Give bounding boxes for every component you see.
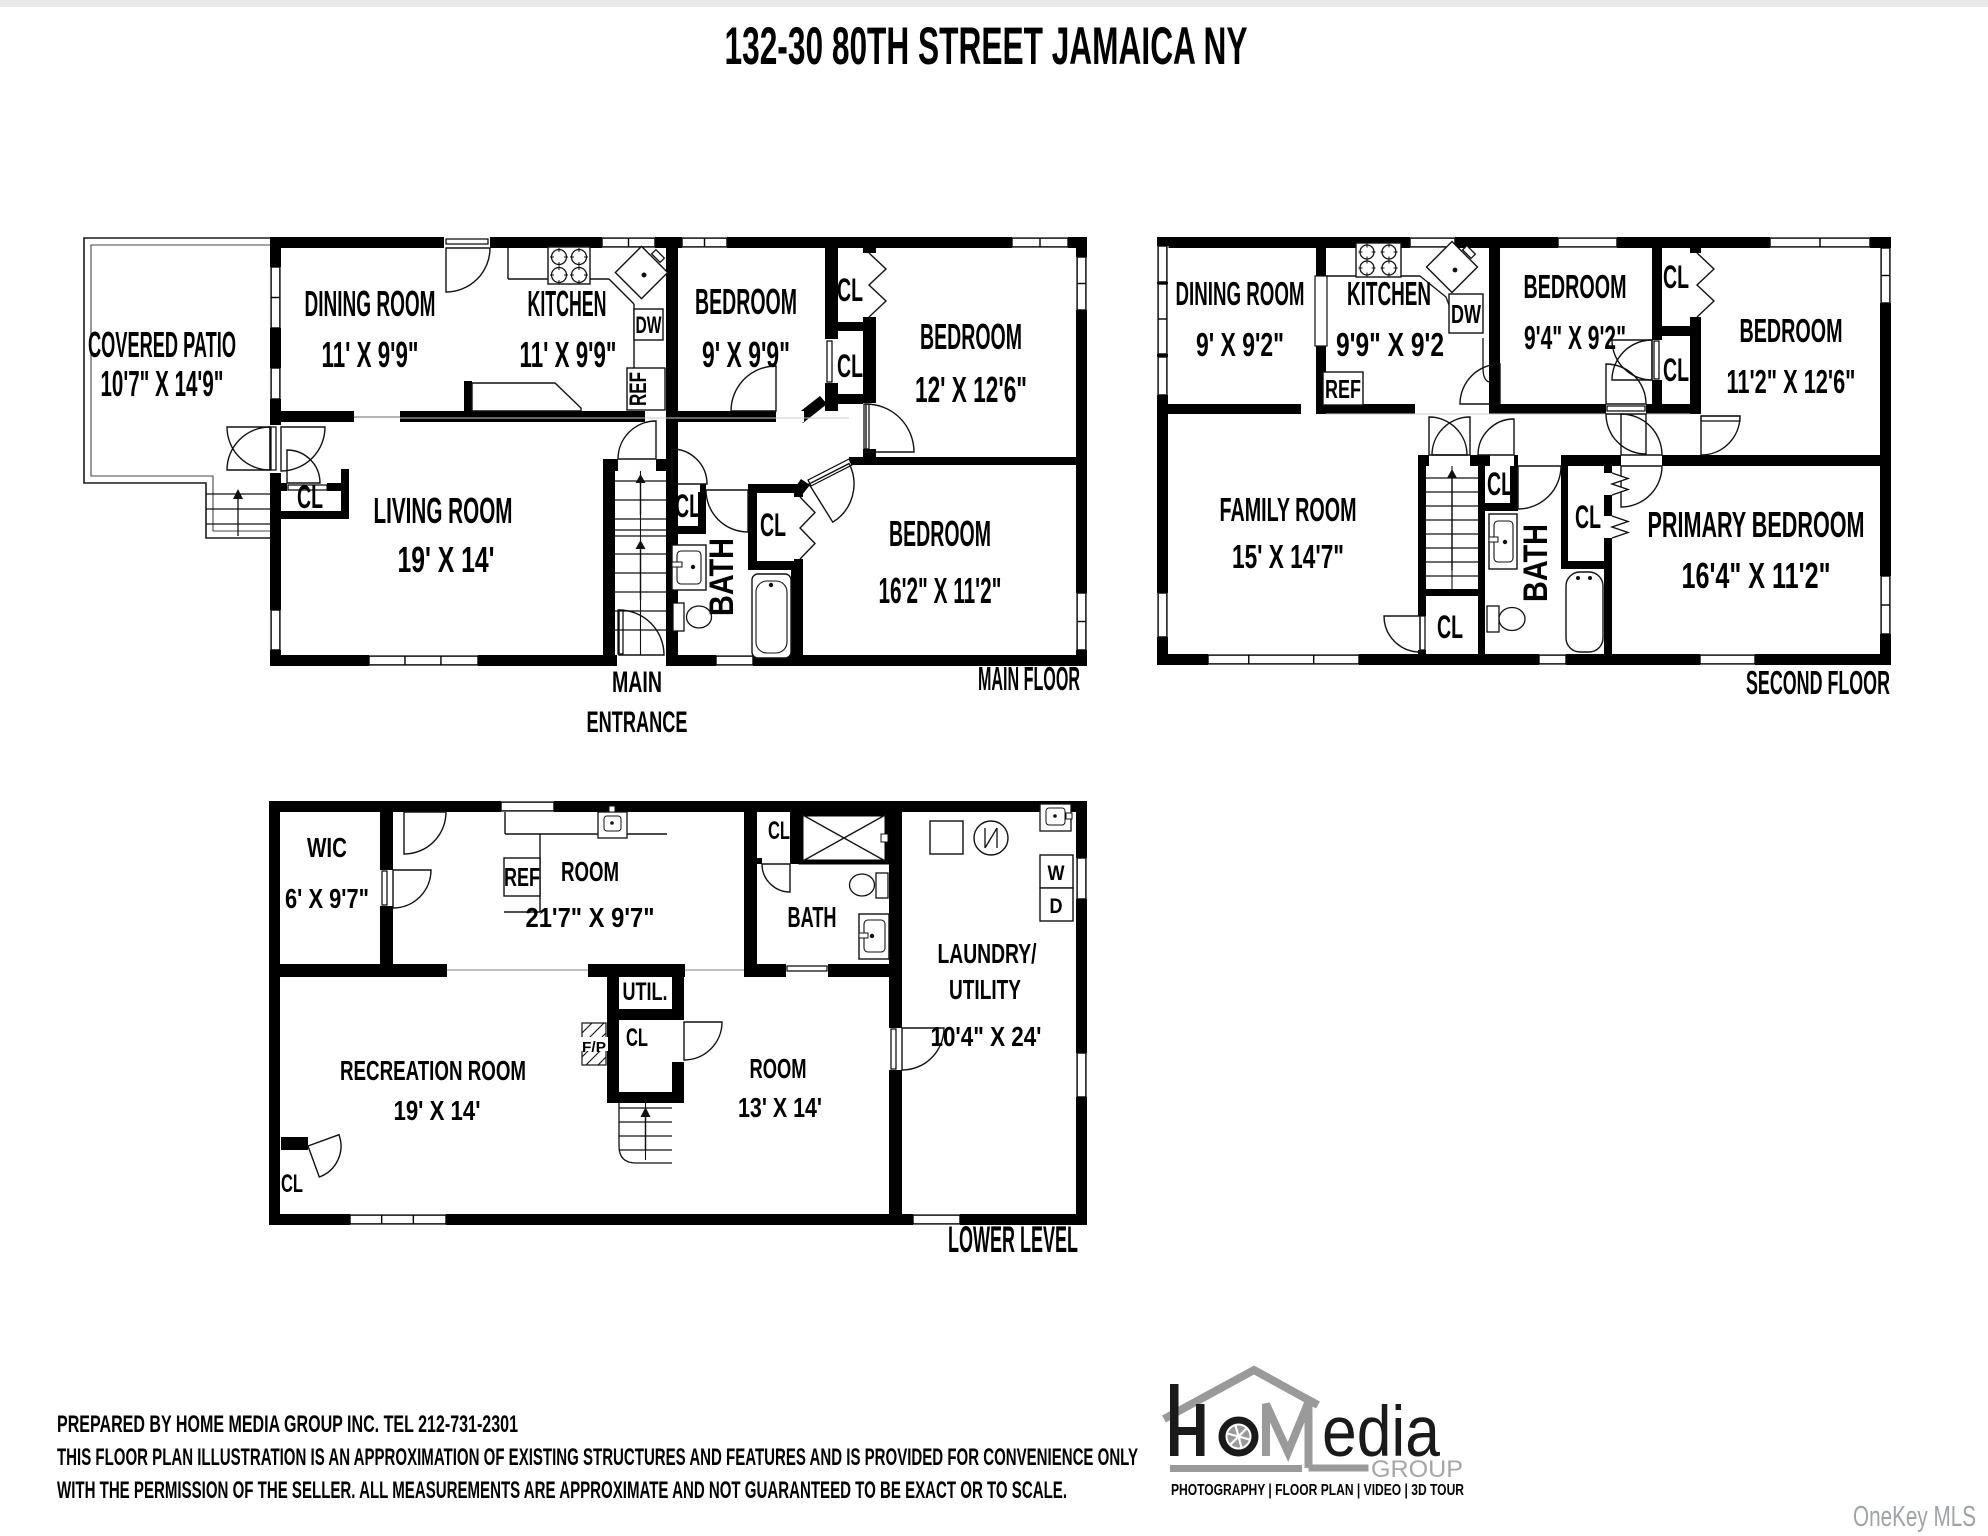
svg-text:CL: CL	[1437, 609, 1463, 645]
svg-text:CL: CL	[675, 488, 701, 524]
svg-text:F/P: F/P	[582, 1039, 606, 1056]
svg-text:KITCHEN: KITCHEN	[1347, 275, 1431, 312]
svg-text:KITCHEN: KITCHEN	[528, 283, 607, 324]
svg-text:SECOND FLOOR: SECOND FLOOR	[1746, 664, 1890, 701]
svg-text:W: W	[1048, 862, 1065, 885]
svg-text:FAMILY ROOM: FAMILY ROOM	[1220, 491, 1357, 528]
svg-text:LIVING ROOM: LIVING ROOM	[374, 490, 513, 531]
svg-text:THIS FLOOR PLAN ILLUSTRATION I: THIS FLOOR PLAN ILLUSTRATION IS AN APPRO…	[57, 1444, 1138, 1471]
svg-text:UTIL.: UTIL.	[623, 978, 668, 1006]
svg-text:CL: CL	[837, 272, 863, 308]
svg-text:LOWER LEVEL: LOWER LEVEL	[948, 1219, 1078, 1260]
svg-text:11' X 9'9": 11' X 9'9"	[322, 334, 419, 375]
svg-text:6' X 9'7": 6' X 9'7"	[285, 883, 369, 914]
svg-text:132-30 80TH STREET JAMAICA NY: 132-30 80TH STREET JAMAICA NY	[725, 17, 1248, 76]
svg-text:CL: CL	[297, 479, 323, 515]
svg-text:12' X 12'6": 12' X 12'6"	[915, 369, 1027, 410]
svg-text:DW: DW	[636, 312, 662, 339]
svg-text:REF: REF	[1325, 374, 1361, 404]
svg-text:21'7" X 9'7": 21'7" X 9'7"	[526, 902, 655, 933]
svg-text:PREPARED BY HOME MEDIA GROUP: PREPARED BY HOME MEDIA GROUP INC. TEL 21…	[57, 1411, 518, 1438]
svg-text:9'4" X 9'2": 9'4" X 9'2"	[1524, 319, 1626, 356]
svg-text:CL: CL	[768, 817, 790, 845]
svg-text:MAIN: MAIN	[612, 666, 662, 699]
svg-text:CL: CL	[626, 1024, 648, 1052]
svg-text:10'4" X 24': 10'4" X 24'	[931, 1021, 1042, 1052]
svg-text:CL: CL	[760, 507, 786, 543]
svg-text:13' X 14': 13' X 14'	[738, 1092, 822, 1123]
svg-text:BEDROOM: BEDROOM	[920, 316, 1022, 357]
svg-text:16'4" X 11'2": 16'4" X 11'2"	[1682, 555, 1831, 596]
svg-text:WITH THE PERMISSION OF THE SEL: WITH THE PERMISSION OF THE SELLER. ALL M…	[57, 1477, 1067, 1504]
svg-text:OneKey MLS: OneKey MLS	[1853, 1501, 1976, 1533]
svg-text:19' X 14': 19' X 14'	[398, 539, 495, 580]
svg-text:BEDROOM: BEDROOM	[889, 513, 991, 554]
svg-text:19' X 14': 19' X 14'	[394, 1095, 481, 1126]
svg-text:ROOM: ROOM	[750, 1053, 807, 1084]
svg-text:CL: CL	[281, 1170, 303, 1198]
svg-text:MAIN FLOOR: MAIN FLOOR	[978, 660, 1080, 697]
svg-text:DINING ROOM: DINING ROOM	[305, 283, 436, 324]
svg-text:BEDROOM: BEDROOM	[695, 281, 797, 322]
svg-text:DINING ROOM: DINING ROOM	[1176, 275, 1305, 312]
svg-text:RECREATION ROOM: RECREATION ROOM	[340, 1055, 526, 1086]
svg-text:BATH: BATH	[788, 902, 837, 934]
svg-text:BATH: BATH	[703, 538, 741, 616]
svg-text:15' X 14'7": 15' X 14'7"	[1232, 538, 1344, 575]
svg-text:COVERED PATIO: COVERED PATIO	[88, 324, 236, 365]
svg-text:CL: CL	[1663, 259, 1689, 295]
svg-text:WIC: WIC	[307, 832, 347, 863]
svg-text:LAUNDRY/: LAUNDRY/	[938, 938, 1037, 969]
svg-text:UTILITY: UTILITY	[949, 974, 1021, 1005]
svg-text:11'2" X 12'6": 11'2" X 12'6"	[1727, 363, 1856, 400]
svg-text:9' X 9'2": 9' X 9'2"	[1196, 326, 1284, 363]
svg-text:REF: REF	[504, 862, 540, 892]
svg-text:PHOTOGRAPHY | FLOOR PLAN | VID: PHOTOGRAPHY | FLOOR PLAN | VIDEO | 3D TO…	[1171, 1482, 1464, 1499]
svg-text:BEDROOM: BEDROOM	[1524, 268, 1627, 305]
svg-text:PRIMARY BEDROOM: PRIMARY BEDROOM	[1648, 504, 1865, 545]
svg-text:CL: CL	[1575, 499, 1601, 535]
svg-text:DW: DW	[1451, 299, 1481, 329]
svg-text:CL: CL	[1487, 466, 1513, 502]
svg-text:REF: REF	[625, 372, 652, 406]
svg-text:16'2" X 11'2": 16'2" X 11'2"	[879, 570, 1002, 611]
svg-text:10'7" X 14'9": 10'7" X 14'9"	[101, 363, 224, 404]
svg-text:GROUP: GROUP	[1371, 1456, 1463, 1483]
svg-text:CL: CL	[837, 348, 863, 384]
svg-text:BATH: BATH	[1517, 524, 1555, 602]
svg-text:ENTRANCE: ENTRANCE	[587, 706, 688, 739]
svg-text:BEDROOM: BEDROOM	[1740, 312, 1843, 349]
svg-text:9'9" X 9'2: 9'9" X 9'2	[1336, 326, 1444, 363]
svg-text:D: D	[1050, 895, 1063, 918]
svg-text:CL: CL	[1663, 352, 1689, 388]
svg-text:9' X 9'9": 9' X 9'9"	[702, 334, 790, 375]
svg-text:11' X 9'9": 11' X 9'9"	[520, 334, 617, 375]
svg-text:ROOM: ROOM	[561, 856, 619, 887]
